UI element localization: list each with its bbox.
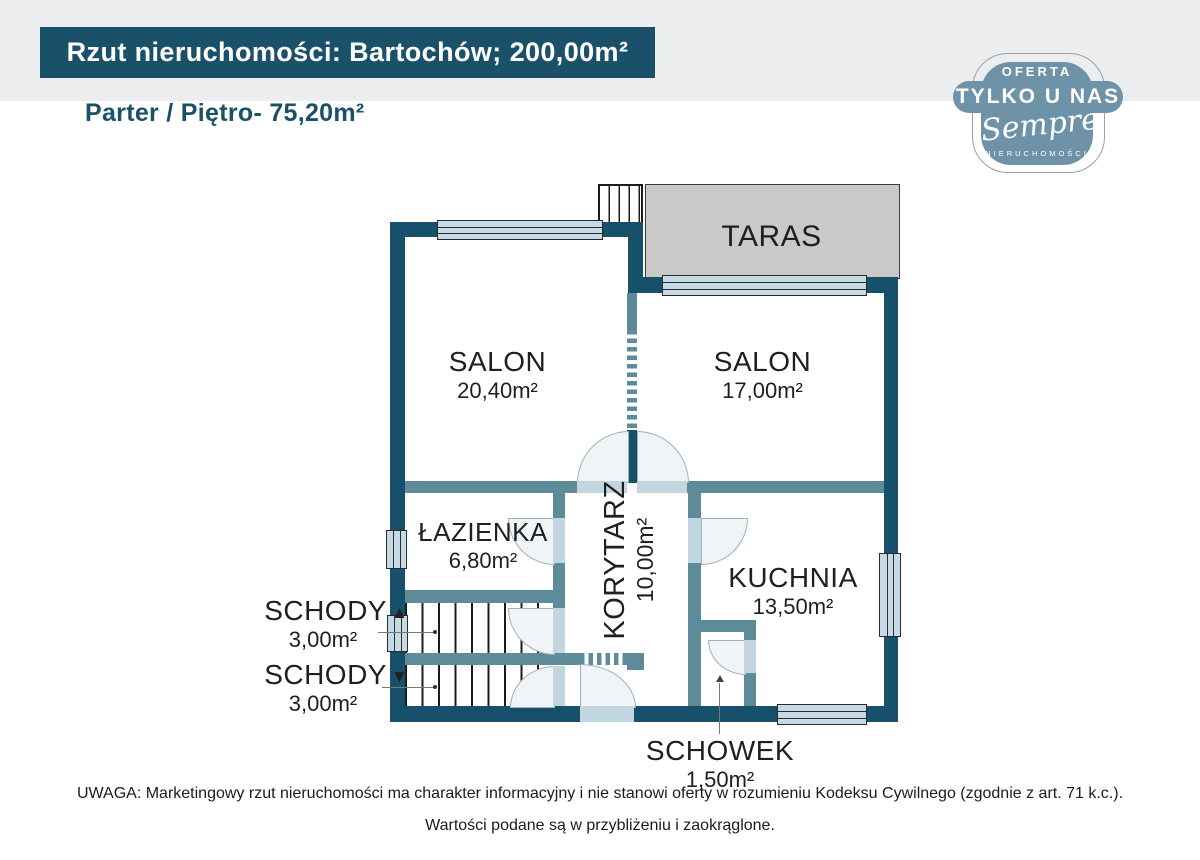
leader-line-schody-down [382, 687, 435, 688]
entry-steps [598, 184, 643, 226]
badge-nieruchomosci-text: NIERUCHOMOŚCI [981, 149, 1093, 158]
door-arc-entrance [580, 664, 636, 708]
door-arc-kitchen [701, 518, 748, 565]
room-label-korytarz: KORYTARZ 10,00m² [599, 454, 655, 666]
floor-label: Parter / Piętro- 75,20m² [85, 99, 365, 128]
wall-closet-right-b [744, 673, 756, 706]
wall-divider-left [405, 481, 577, 493]
leader-dot-schody-up [433, 630, 437, 634]
window-bottom-right [777, 704, 867, 725]
leader-arrow-schowek [716, 675, 724, 682]
page-title: Rzut nieruchomości: Bartochów; 200,00m² [67, 37, 629, 68]
leader-line-schody-up [378, 632, 435, 633]
room-label-schowek: SCHOWEK 1,50m² [630, 735, 810, 792]
arrow-up-glyph: ▲ [391, 603, 408, 622]
wall-closet-top [701, 620, 756, 632]
wall-corridor-right-a [688, 493, 701, 518]
door-leaf-entrance [580, 706, 634, 722]
window-under-terrace [662, 275, 867, 296]
wall-bathroom-bottom [405, 590, 565, 603]
wall-partition-upper [627, 293, 637, 330]
wall-corridor-right-c [688, 620, 701, 706]
wall-partition-dashed [627, 330, 637, 430]
room-label-kuchnia: KUCHNIA 13,50m² [703, 562, 883, 619]
title-banner: Rzut nieruchomości: Bartochów; 200,00m² [40, 27, 655, 78]
room-label-salon-left: SALON 20,40m² [395, 346, 600, 403]
wall-outer-right [884, 277, 898, 722]
arrow-down-glyph: ▼ [391, 667, 408, 686]
badge-tylko-u-nas-text: TYLKO U NAS [953, 85, 1123, 109]
room-label-schody-up: SCHODY▲ 3,00m² [250, 595, 422, 652]
disclaimer-line-2: Wartości podane są w przybliżeniu i zaok… [0, 817, 1200, 835]
wall-closet-right-a [744, 632, 756, 640]
leader-line-schowek [719, 683, 720, 734]
wall-corridor-right-b [688, 563, 701, 620]
room-label-salon-right: SALON 17,00m² [660, 346, 865, 403]
door-arc-closet [708, 640, 746, 675]
room-label-lazienka: ŁAZIENKA 6,80m² [408, 518, 558, 573]
wall-divider-right [687, 481, 884, 493]
door-leaf-stairs-lower [553, 666, 565, 706]
disclaimer-line-1: UWAGA: Marketingowy rzut nieruchomości m… [0, 785, 1200, 803]
wall-corridor-left-a [553, 493, 565, 518]
door-leaf-kitchen [688, 518, 701, 563]
badge-oferta-text: OFERTA [981, 64, 1093, 79]
wall-under-terrace-left [628, 277, 664, 293]
door-leaf-stairs-upper [553, 608, 565, 653]
leader-dot-schody-down [433, 685, 437, 689]
window-bathroom-left [386, 530, 407, 569]
window-salon-left-top [437, 220, 603, 240]
wall-under-terrace-right [863, 277, 898, 293]
room-label-taras: TARAS [645, 220, 898, 254]
door-leaf-closet [744, 640, 756, 673]
